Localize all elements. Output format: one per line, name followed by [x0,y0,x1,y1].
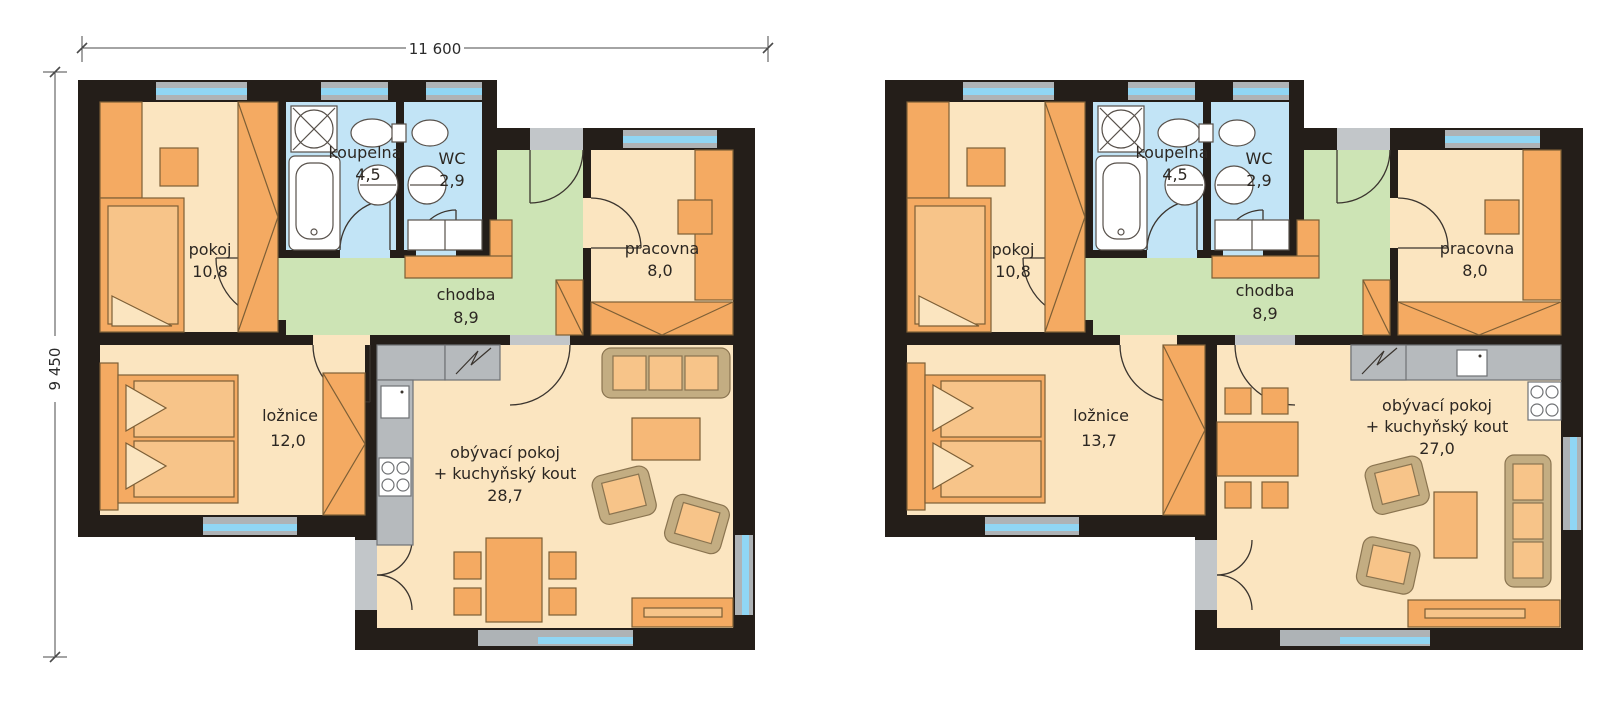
bathtub-icon [289,156,340,250]
chair-icon [1262,388,1288,414]
floor-plan-canvas: 11 600 9 450 [0,0,1600,706]
kitchen-counter-icon [377,345,445,380]
stove-icon [1528,382,1561,420]
wc-cabinet-icon [408,220,482,250]
label-wc-area: 2,9 [1246,171,1271,190]
door-opening-koupelna [340,250,390,258]
french-door-opening [355,540,377,610]
label-obyvaci-2: + kuchyňský kout [1366,417,1508,436]
bathtub-icon [1096,156,1147,250]
headboard-icon [907,363,925,510]
french-door-opening [1195,540,1217,610]
headboard-icon [100,363,118,510]
window-loznice-bottom [985,517,1079,535]
entrance-threshold [530,128,583,150]
table-icon [160,148,198,186]
door-opening-pokoj [1085,258,1093,320]
door-opening-obyvaci [1235,335,1295,345]
window-koupelna-top [1128,82,1195,100]
floor-plan-sheet: 11 600 9 450 [0,0,1600,706]
label-chodba-area: 8,9 [1252,304,1277,323]
label-loznice: ložnice [262,406,318,425]
door-opening-pracovna [583,198,591,248]
toilet-icon [412,120,448,146]
dining-table-icon [1217,422,1298,476]
chair-icon [1225,482,1251,508]
label-koupelna: koupelna [1135,143,1208,162]
label-chodba-area: 8,9 [453,308,478,327]
label-pracovna: pracovna [1440,239,1515,258]
door-opening-pracovna [1390,198,1398,248]
sink-icon [381,386,409,418]
chair-icon [454,588,481,615]
tv-cabinet-icon [1408,600,1560,627]
window-pokoj-top [963,82,1054,100]
entrance-threshold [1337,128,1390,150]
coffee-table-icon [1434,492,1477,558]
label-loznice-area: 13,7 [1081,431,1117,450]
label-chodba: chodba [437,285,496,304]
label-koupelna-area: 4,5 [355,165,380,184]
window-obyvaci-bottom [478,630,633,646]
label-loznice-area: 12,0 [270,431,306,450]
wardrobe-icon [1163,345,1205,515]
wardrobe-icon [1398,302,1561,335]
window-obyvaci-right [735,535,753,615]
table-icon [967,148,1005,186]
sofa-icon [1505,455,1551,587]
window-pokoj-top [156,82,247,100]
label-koupelna: koupelna [328,143,401,162]
chair-icon [1262,482,1288,508]
label-pokoj-area: 10,8 [995,262,1031,281]
label-obyvaci-2: + kuchyňský kout [434,464,576,483]
label-koupelna-area: 4,5 [1162,165,1187,184]
dining-table-icon [486,538,542,622]
stove-icon [379,458,411,496]
label-wc: WC [1246,149,1273,168]
window-pracovna-top [623,130,717,148]
chair-icon [454,552,481,579]
window-pracovna-top [1445,130,1540,148]
coffee-table-icon [632,418,700,460]
desk-table-icon [1485,200,1519,234]
wardrobe-icon [238,102,278,332]
label-loznice: ložnice [1073,406,1129,425]
door-opening-loznice [1120,335,1177,345]
window-obyvaci-bottom [1280,630,1430,646]
toilet-icon [1219,120,1255,146]
label-pokoj-area: 10,8 [192,262,228,281]
desk-icon [1523,150,1561,300]
door-opening-koupelna [1147,250,1197,258]
door-opening-loznice [313,335,370,345]
window-wc-top [426,82,482,100]
window-obyvaci-right [1563,437,1581,530]
wardrobe-icon [591,302,733,335]
cabinet-icon [100,102,142,198]
door-opening-obyvaci [510,335,570,345]
label-pracovna: pracovna [625,239,700,258]
label-obyvaci-1: obývací pokoj [450,443,560,462]
desk-table-icon [678,200,712,234]
floor-plan-right: pokoj 10,8 koupelna 4,5 WC 2,9 chodba 8,… [885,80,1583,650]
label-pokoj: pokoj [992,240,1035,259]
wc-cabinet-icon [1215,220,1289,250]
sink-icon [1457,350,1487,376]
window-wc-top [1233,82,1289,100]
label-obyvaci-area: 28,7 [487,486,523,505]
tv-cabinet-icon [632,598,733,627]
sofa-icon [602,348,730,398]
dimension-height-label: 9 450 [46,348,64,391]
dimension-top: 11 600 [77,36,773,62]
dimension-width-label: 11 600 [409,40,462,58]
loznice-furniture [100,363,365,515]
label-pracovna-area: 8,0 [647,261,672,280]
label-obyvaci-area: 27,0 [1419,439,1455,458]
wardrobe-icon [323,373,365,515]
label-pracovna-area: 8,0 [1462,261,1487,280]
dimension-left: 9 450 [43,67,67,662]
wardrobe-icon [1045,102,1085,332]
label-chodba: chodba [1236,281,1295,300]
chair-icon [549,588,576,615]
label-wc: WC [439,149,466,168]
chair-icon [1225,388,1251,414]
window-loznice-bottom [203,517,297,535]
label-pokoj: pokoj [189,240,232,259]
cabinet-icon [907,102,949,198]
door-opening-pokoj [278,258,286,320]
window-koupelna-top [321,82,388,100]
floor-plan-left: pokoj 10,8 koupelna 4,5 WC 2,9 chodba 8,… [78,80,755,650]
label-obyvaci-1: obývací pokoj [1382,396,1492,415]
chair-icon [549,552,576,579]
label-wc-area: 2,9 [439,171,464,190]
